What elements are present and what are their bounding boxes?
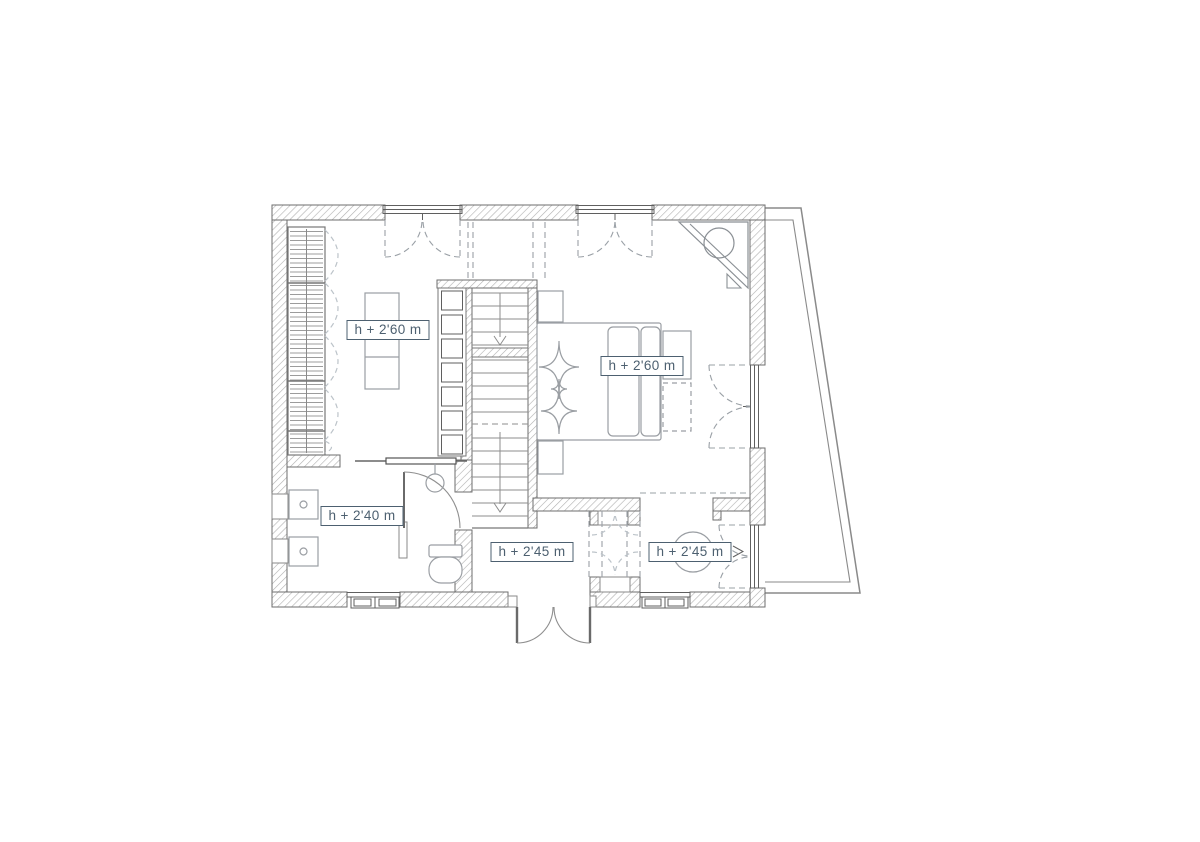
height-label-dressing-room: h + 2'60 m	[347, 320, 430, 340]
sliding-door	[386, 458, 456, 464]
wash-basin	[426, 474, 444, 492]
stair-cut-line	[472, 348, 528, 357]
wall-niche	[272, 539, 288, 563]
terrace-outline	[765, 208, 860, 593]
height-label-bathroom: h + 2'40 m	[321, 506, 404, 526]
floor-plan-canvas: h + 2'60 m h + 2'60 m h + 2'40 m h + 2'4…	[0, 0, 1200, 842]
wardrobe	[288, 227, 338, 455]
height-label-sitting-room: h + 2'45 m	[649, 542, 732, 562]
stair-arrow-down	[494, 503, 506, 512]
sink	[289, 490, 318, 519]
door-jamb	[590, 596, 596, 607]
wall-niche	[272, 494, 288, 519]
bathroom-door-arc	[404, 472, 460, 528]
toilet-tank	[429, 545, 462, 557]
french-door-bedroom	[709, 365, 759, 448]
height-label-bedroom: h + 2'60 m	[601, 356, 684, 376]
height-label-entrance-hall: h + 2'45 m	[491, 542, 574, 562]
entrance-door	[517, 607, 590, 643]
toilet-bowl	[429, 557, 462, 583]
shelf-column	[438, 288, 466, 456]
bed	[537, 323, 661, 440]
nightstand-dashed	[663, 383, 691, 431]
corner-fireplace	[679, 222, 748, 288]
window-bottom-right	[640, 592, 690, 608]
window-bottom-left	[347, 592, 400, 608]
door-jamb	[508, 596, 517, 607]
stair-arrow-down	[494, 336, 506, 345]
sink	[289, 537, 318, 566]
bedroom-furniture	[537, 291, 691, 474]
bedside-stool	[538, 441, 563, 474]
staircase	[472, 293, 528, 528]
pocket-niche	[600, 577, 630, 592]
bedside-stool	[538, 291, 563, 322]
window-top-left	[383, 205, 462, 257]
window-top-right	[576, 205, 654, 257]
floor-plan-drawing	[0, 0, 1200, 842]
dressing-table	[365, 293, 399, 389]
